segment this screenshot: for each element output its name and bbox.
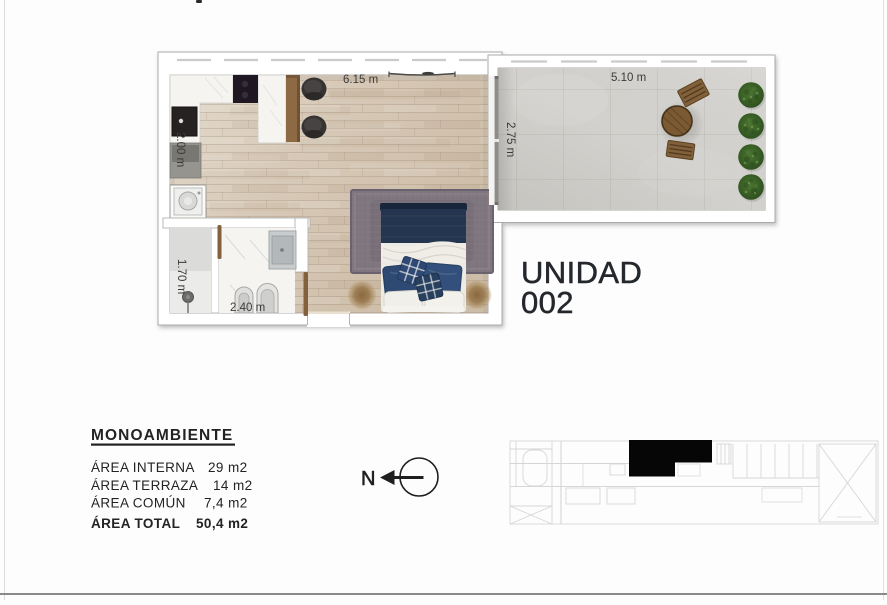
svg-text:ÁREA INTERNA: ÁREA INTERNA: [91, 460, 195, 475]
svg-text:29 m2: 29 m2: [208, 460, 248, 475]
svg-text:ÁREA TERRAZA: ÁREA TERRAZA: [91, 478, 198, 493]
svg-text:2.75 m: 2.75 m: [504, 122, 516, 157]
svg-text:2.00 m: 2.00 m: [174, 132, 186, 167]
svg-text:ÁREA TOTAL: ÁREA TOTAL: [91, 516, 180, 531]
svg-text:2.40 m: 2.40 m: [230, 302, 265, 314]
svg-text:50,4 m2: 50,4 m2: [196, 516, 248, 531]
svg-text:N: N: [361, 468, 375, 490]
svg-text:002: 002: [521, 285, 574, 320]
svg-text:MONOAMBIENTE: MONOAMBIENTE: [91, 427, 233, 444]
svg-text:ÁREA COMÚN: ÁREA COMÚN: [91, 496, 186, 511]
svg-text:1.70 m: 1.70 m: [175, 259, 187, 294]
svg-text:7,4 m2: 7,4 m2: [204, 496, 248, 511]
svg-text:5.10 m: 5.10 m: [611, 72, 646, 84]
svg-text:6.15 m: 6.15 m: [343, 74, 378, 86]
svg-text:14 m2: 14 m2: [213, 478, 253, 493]
